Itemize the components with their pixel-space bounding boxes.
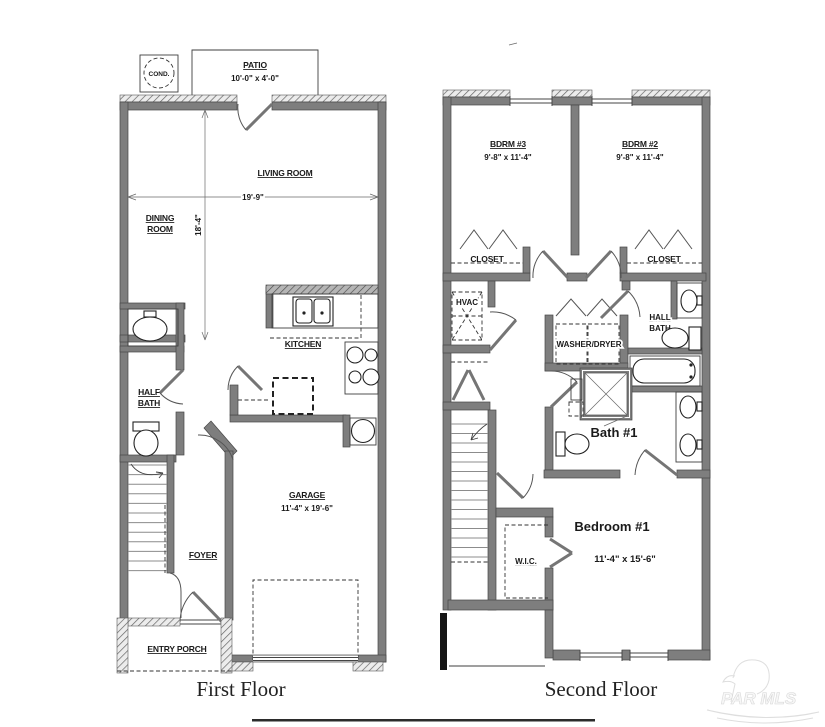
floor-plan-drawing: PATIO 10'-0" x 4'-0" COND. bbox=[0, 0, 825, 727]
bedroom1-label: Bedroom #1 bbox=[574, 519, 649, 534]
first-floor-plan: PATIO 10'-0" x 4'-0" COND. bbox=[117, 50, 386, 701]
width-dimension: 19'-9" bbox=[128, 193, 378, 202]
hvac-closet: HVAC bbox=[452, 292, 516, 350]
patio: PATIO 10'-0" x 4'-0" bbox=[192, 50, 318, 97]
hvac-door bbox=[490, 312, 516, 350]
kitchen-label: KITCHEN bbox=[285, 339, 321, 349]
closet-left: CLOSET bbox=[451, 230, 523, 264]
closet-right: CLOSET bbox=[627, 230, 702, 264]
patio-label: PATIO bbox=[243, 60, 267, 70]
watermark-logo: PAR MLS bbox=[707, 660, 819, 723]
bath1-entry-door bbox=[551, 371, 577, 407]
dining-room-label: DINING ROOM bbox=[146, 213, 175, 234]
bedroom1: Bedroom #1 11'-4" x 15'-6" bbox=[574, 519, 655, 565]
bath1: Bath #1 bbox=[551, 368, 702, 475]
bedroom3-label: BDRM #3 bbox=[490, 139, 526, 149]
dining-room-label-line1: DINING bbox=[146, 213, 175, 223]
dining-room-label-line2: ROOM bbox=[147, 224, 173, 234]
patio-dimension: 10'-0" x 4'-0" bbox=[231, 74, 279, 83]
walk-in-closet: W.I.C. bbox=[505, 525, 572, 598]
bedroom2-dimension: 9'-8" x 11'-4" bbox=[616, 153, 664, 162]
entry-porch-label: ENTRY PORCH bbox=[147, 644, 206, 654]
hall-bath-tub bbox=[630, 356, 700, 386]
bath1-label: Bath #1 bbox=[591, 425, 638, 440]
condenser-label: COND. bbox=[149, 71, 170, 78]
stray-mark bbox=[509, 43, 517, 45]
bedroom3-door bbox=[533, 251, 568, 278]
entry-door bbox=[180, 592, 222, 624]
half-bath-faucet bbox=[144, 311, 156, 317]
linen-closet bbox=[451, 362, 488, 400]
bedroom2-door bbox=[586, 251, 621, 278]
entry-porch: ENTRY PORCH bbox=[117, 618, 232, 673]
half-bath: HALF BATH bbox=[128, 309, 183, 456]
bath1-toilet bbox=[556, 432, 589, 456]
hall-bath-label-line1: HALL bbox=[649, 313, 670, 322]
bottom-rule bbox=[252, 719, 595, 722]
washer-dryer-bifold-door bbox=[556, 299, 617, 316]
living-room-label: LIVING ROOM bbox=[258, 168, 313, 178]
half-bath-label-line2: BATH bbox=[138, 398, 160, 408]
bedroom1-dimension: 11'-4" x 15'-6" bbox=[594, 554, 656, 565]
second-floor-title: Second Floor bbox=[545, 677, 658, 701]
garage-door-dashed bbox=[253, 580, 358, 660]
second-floor-plan: BDRM #3 9'-8" x 11'-4" BDRM #2 9'-8" x 1… bbox=[440, 43, 710, 701]
patio-door bbox=[238, 104, 272, 130]
bedroom2-label: BDRM #2 bbox=[622, 139, 658, 149]
stairs-direction-arrow bbox=[131, 464, 163, 478]
bath1-bedroom-door bbox=[635, 450, 677, 475]
wic-label: W.I.C. bbox=[515, 557, 537, 566]
second-floor-stairs bbox=[451, 424, 488, 562]
stairs-direction-arrow bbox=[471, 424, 487, 440]
closet-left-label: CLOSET bbox=[470, 254, 504, 264]
garage-dimension: 11'-4" x 19'-6" bbox=[281, 504, 333, 513]
closet-right-label: CLOSET bbox=[647, 254, 681, 264]
kitchen-sink bbox=[293, 297, 333, 326]
half-bath-label-line1: HALF bbox=[138, 387, 160, 397]
half-bath-door bbox=[160, 370, 183, 404]
kitchen-bar-wall bbox=[266, 285, 378, 294]
height-dimension: 18'-4" bbox=[194, 110, 208, 340]
bedroom3: BDRM #3 9'-8" x 11'-4" bbox=[484, 139, 532, 162]
hall-bedroom1-door bbox=[497, 473, 533, 498]
garage-label: GARAGE bbox=[289, 490, 326, 500]
hall-bath-toilet bbox=[662, 327, 701, 350]
kitchen-stove bbox=[345, 342, 379, 394]
wic-doors bbox=[550, 539, 572, 567]
porch-edge-bar bbox=[440, 613, 447, 670]
hall-bath-vanity bbox=[677, 283, 702, 318]
first-floor-title: First Floor bbox=[196, 677, 285, 701]
kitchen-island bbox=[273, 378, 313, 414]
water-heater bbox=[350, 418, 376, 445]
height-dimension-label: 18'-4" bbox=[194, 214, 203, 236]
washer-dryer-label: WASHER/DRYER bbox=[556, 340, 621, 349]
bath1-shower bbox=[580, 368, 632, 420]
condenser-unit: COND. bbox=[140, 55, 178, 92]
width-dimension-label: 19'-9" bbox=[242, 193, 264, 202]
bedroom2: BDRM #2 9'-8" x 11'-4" bbox=[616, 139, 664, 162]
hvac-label: HVAC bbox=[456, 298, 478, 307]
half-bath-sink bbox=[133, 317, 167, 341]
foyer-label: FOYER bbox=[189, 550, 217, 560]
bath1-double-vanity bbox=[676, 392, 702, 462]
watermark-text: PAR MLS bbox=[721, 689, 797, 708]
bedroom3-dimension: 9'-8" x 11'-4" bbox=[484, 153, 532, 162]
half-bath-toilet bbox=[133, 422, 159, 456]
closet-right-bifold-door bbox=[635, 230, 692, 249]
stair-railing bbox=[170, 573, 181, 618]
floor-plan-sheet: PATIO 10'-0" x 4'-0" COND. bbox=[0, 0, 825, 727]
closet-left-bifold-door bbox=[460, 230, 517, 249]
